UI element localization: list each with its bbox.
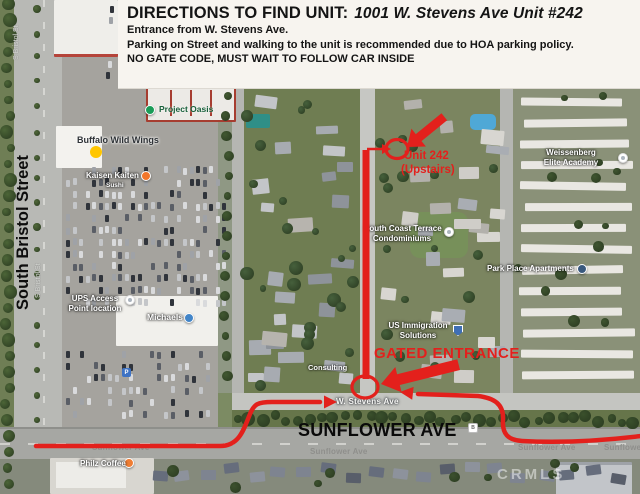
w-stevens-ave-label: W. Stevens Ave [336, 397, 399, 406]
poi-buffalo-wild-wings: Buffalo Wild Wings [77, 136, 159, 145]
academy-pin-icon [618, 153, 628, 163]
sunflower-ave-small-label-3: Sunflower Ave [518, 443, 576, 452]
parking-note: Parking on Street and walking to the uni… [127, 38, 579, 53]
poi-kaisen-kaiten: Kaisen Kaiten [86, 171, 139, 180]
ups-pin-icon [125, 295, 135, 305]
poi-consulting: Consulting [308, 363, 347, 372]
map-green-edge [0, 0, 14, 494]
south-bristol-street-label: South Bristol Street [14, 155, 33, 310]
poi-park-place-apartments: Park Place Apartments [487, 264, 574, 273]
crmls-watermark: CRMLS [497, 466, 565, 483]
directions-address: 1001 W. Stevens Ave Unit #242 [354, 5, 583, 22]
poi-south-coast-terrace: South Coast Terrace Condominiums [364, 224, 440, 243]
bww-logo-icon [90, 146, 102, 158]
condo-pin-icon [444, 227, 454, 237]
michaels-pin-icon [184, 313, 194, 323]
poi-michaels: Michaels [147, 313, 183, 322]
restaurant-pin-icon [141, 171, 151, 181]
apartments-pin-icon [577, 264, 587, 274]
annotated-satellite-map: South Bristol Street S Bristol St S Bris… [0, 0, 640, 494]
gate-code-note: NO GATE CODE, MUST WAIT TO FOLLOW CAR IN… [127, 52, 579, 67]
red-trim-building [146, 84, 236, 122]
sunflower-ave-small-label-4: Sunflower Ave [604, 443, 640, 452]
poi-weissenberg-academy: Weissenberg Elite Academy [540, 148, 602, 167]
entrance-note: Entrance from W. Stevens Ave. [127, 23, 579, 38]
poi-philz-coffee: Philz Coffee [80, 459, 126, 468]
directions-title-label: DIRECTIONS TO FIND UNIT: [127, 4, 348, 22]
school-building [556, 462, 632, 494]
s-bristol-st-label: S Bristol St [13, 25, 20, 60]
s-bristol-st-label-2: S Bristol St [35, 263, 42, 298]
poi-project-oasis: Project Oasis [159, 105, 213, 114]
poi-us-immigration: US Immigration Solutions [386, 321, 450, 340]
sunflower-ave-big-label: SUNFLOWER AVE [298, 426, 457, 435]
directions-title: DIRECTIONS TO FIND UNIT:1001 W. Stevens … [127, 4, 640, 23]
park-pin-icon [145, 105, 155, 115]
parking-icon: P [122, 368, 131, 377]
retail-building [54, 0, 118, 57]
poi-ups-access-point: UPS Access Point location [66, 294, 124, 313]
sunflower-ave-small-label-2: Sunflower Ave [310, 447, 368, 456]
sunflower-ave-small-label-1: Sunflower Ave [92, 443, 150, 452]
poi-kaisen-sub: Sushi [106, 181, 124, 190]
w-stevens-ave-road [232, 393, 640, 410]
bus-stop-icon: B [468, 423, 478, 433]
tennis-court [246, 114, 270, 128]
swimming-pool [470, 114, 496, 130]
directions-panel: DIRECTIONS TO FIND UNIT:1001 W. Stevens … [118, 0, 640, 89]
